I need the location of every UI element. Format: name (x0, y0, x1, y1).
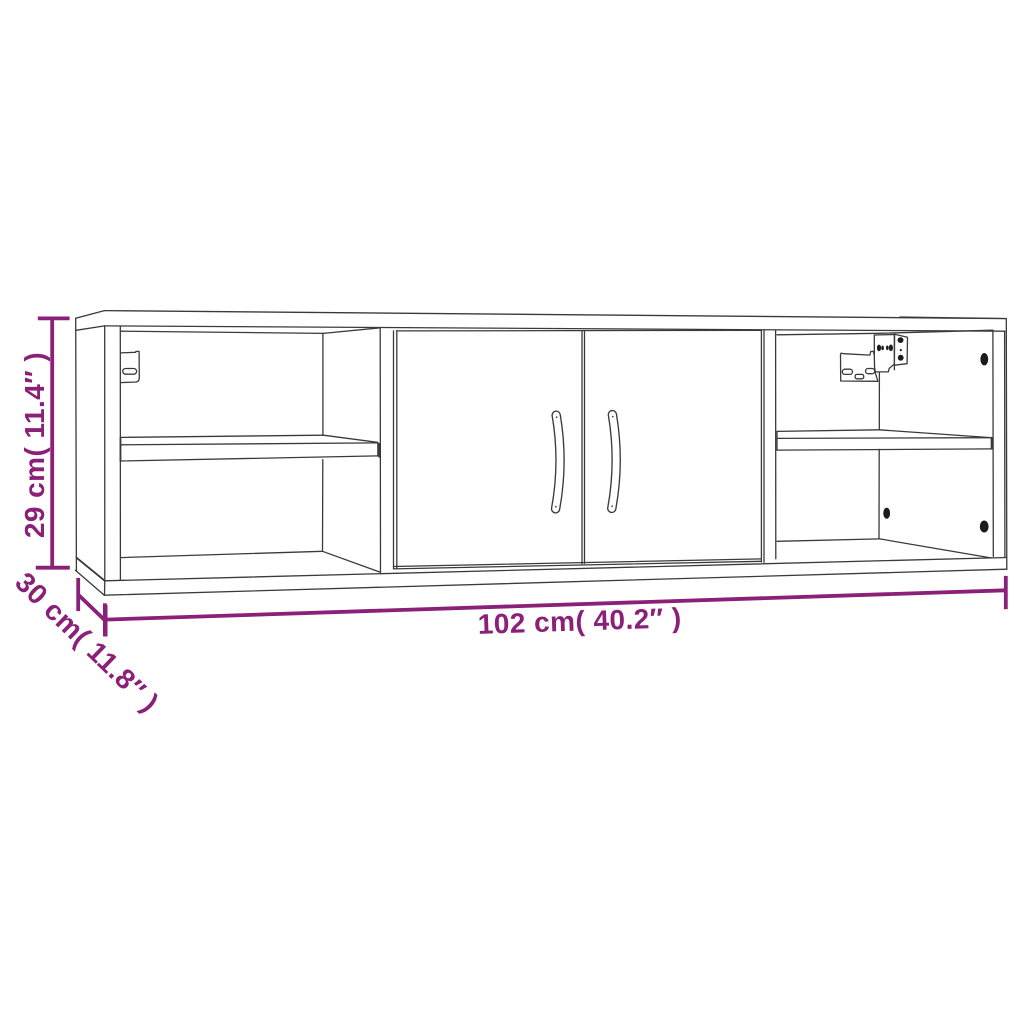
svg-text:29 cm( 11.4″ ): 29 cm( 11.4″ ) (19, 352, 50, 538)
